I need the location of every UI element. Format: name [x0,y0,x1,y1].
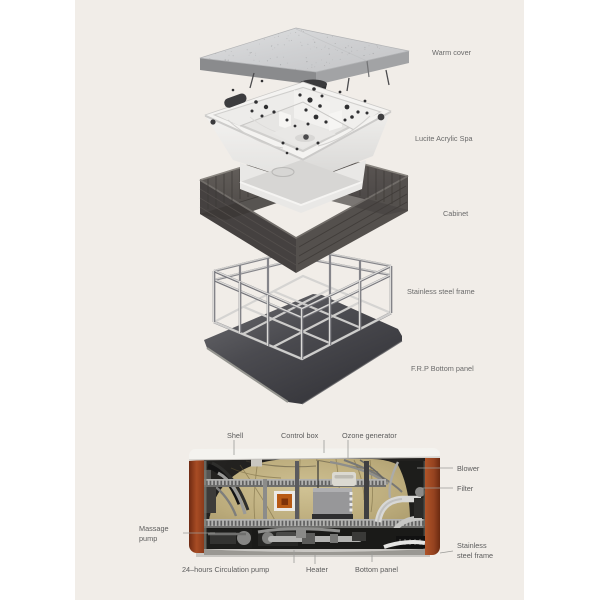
svg-text:Cabinet: Cabinet [443,209,468,218]
svg-text:Heater: Heater [306,565,328,574]
svg-text:Stainless: Stainless [457,541,487,550]
svg-text:24–hours Circulation pump: 24–hours Circulation pump [182,565,269,574]
svg-text:Filter: Filter [457,484,474,493]
svg-text:Control box: Control box [281,431,319,440]
svg-text:Shell: Shell [227,431,244,440]
svg-text:steel frame: steel frame [457,551,493,560]
svg-text:Stainless steel frame: Stainless steel frame [407,287,475,296]
svg-text:Bottom panel: Bottom panel [355,565,398,574]
svg-text:Warm cover: Warm cover [432,48,472,57]
svg-text:Lucite Acrylic Spa: Lucite Acrylic Spa [415,134,474,143]
svg-text:F.R.P Bottom panel: F.R.P Bottom panel [411,364,474,373]
svg-text:Blower: Blower [457,464,480,473]
svg-text:Massage: Massage [139,524,169,533]
svg-text:Ozone generator: Ozone generator [342,431,397,440]
svg-text:pump: pump [139,534,157,543]
